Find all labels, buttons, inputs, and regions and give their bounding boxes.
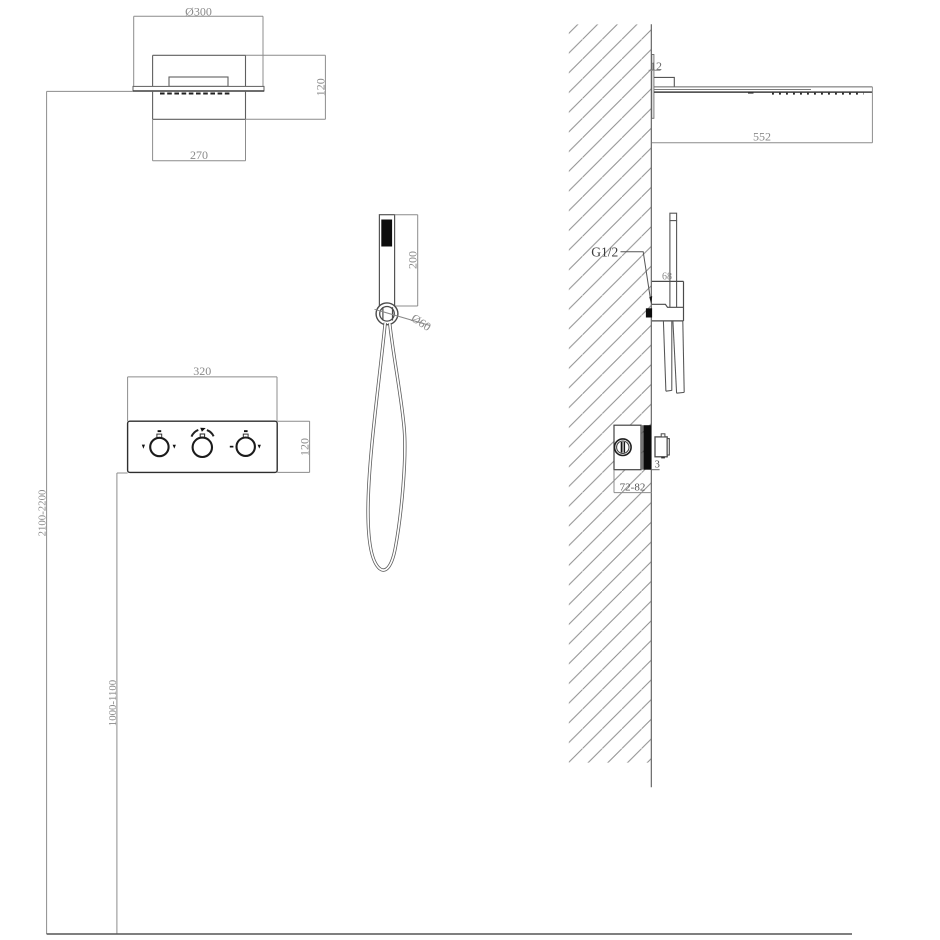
svg-text:120: 120 bbox=[313, 78, 327, 96]
svg-text:G1/2: G1/2 bbox=[591, 245, 618, 260]
svg-text:120: 120 bbox=[297, 438, 311, 456]
svg-text:1000-1100: 1000-1100 bbox=[107, 680, 119, 726]
svg-text:552: 552 bbox=[753, 130, 771, 144]
svg-text:12: 12 bbox=[650, 59, 662, 73]
svg-text:72-82: 72-82 bbox=[620, 482, 646, 494]
svg-text:3: 3 bbox=[655, 460, 660, 471]
svg-text:Ø300: Ø300 bbox=[185, 4, 212, 18]
svg-text:2100-2200: 2100-2200 bbox=[37, 490, 49, 537]
svg-text:320: 320 bbox=[193, 364, 211, 378]
svg-text:200: 200 bbox=[406, 251, 420, 269]
svg-text:270: 270 bbox=[190, 148, 208, 162]
svg-text:68: 68 bbox=[662, 271, 672, 282]
